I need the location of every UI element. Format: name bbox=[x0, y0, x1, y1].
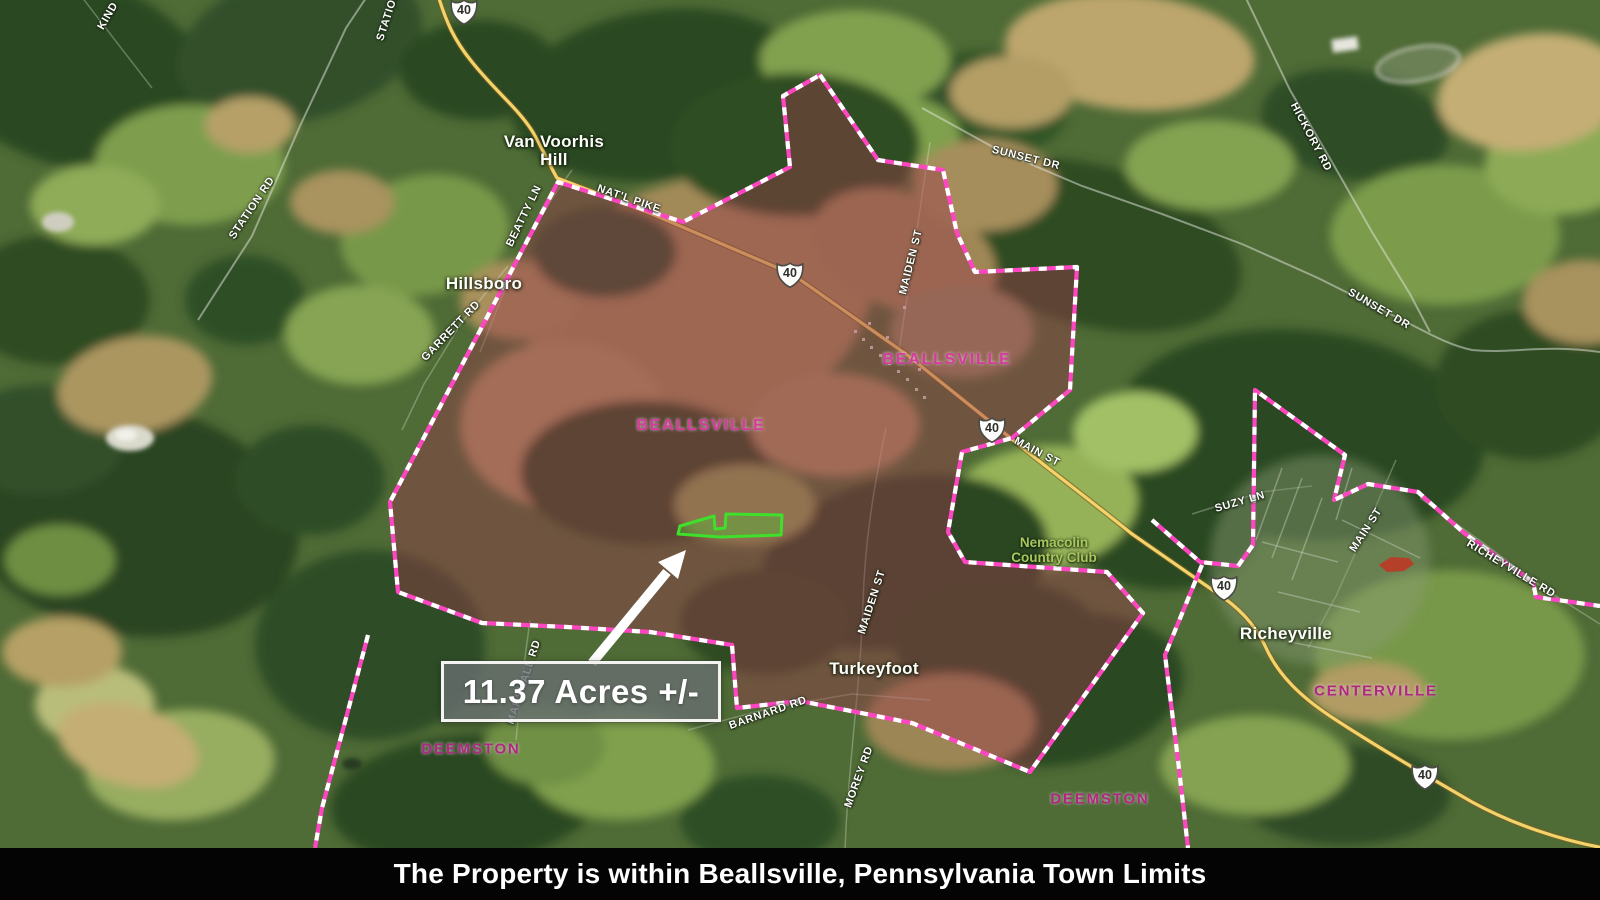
caption-text: The Property is within Beallsville, Penn… bbox=[394, 858, 1207, 890]
map-canvas: KINDSTATIONSTATION RDBEATTY LNNAT'L PIKE… bbox=[0, 0, 1600, 900]
map-svg bbox=[0, 0, 1600, 900]
acreage-callout: 11.37 Acres +/- bbox=[441, 661, 721, 722]
acreage-text: 11.37 Acres +/- bbox=[463, 673, 700, 711]
caption-bar: The Property is within Beallsville, Penn… bbox=[0, 848, 1600, 900]
